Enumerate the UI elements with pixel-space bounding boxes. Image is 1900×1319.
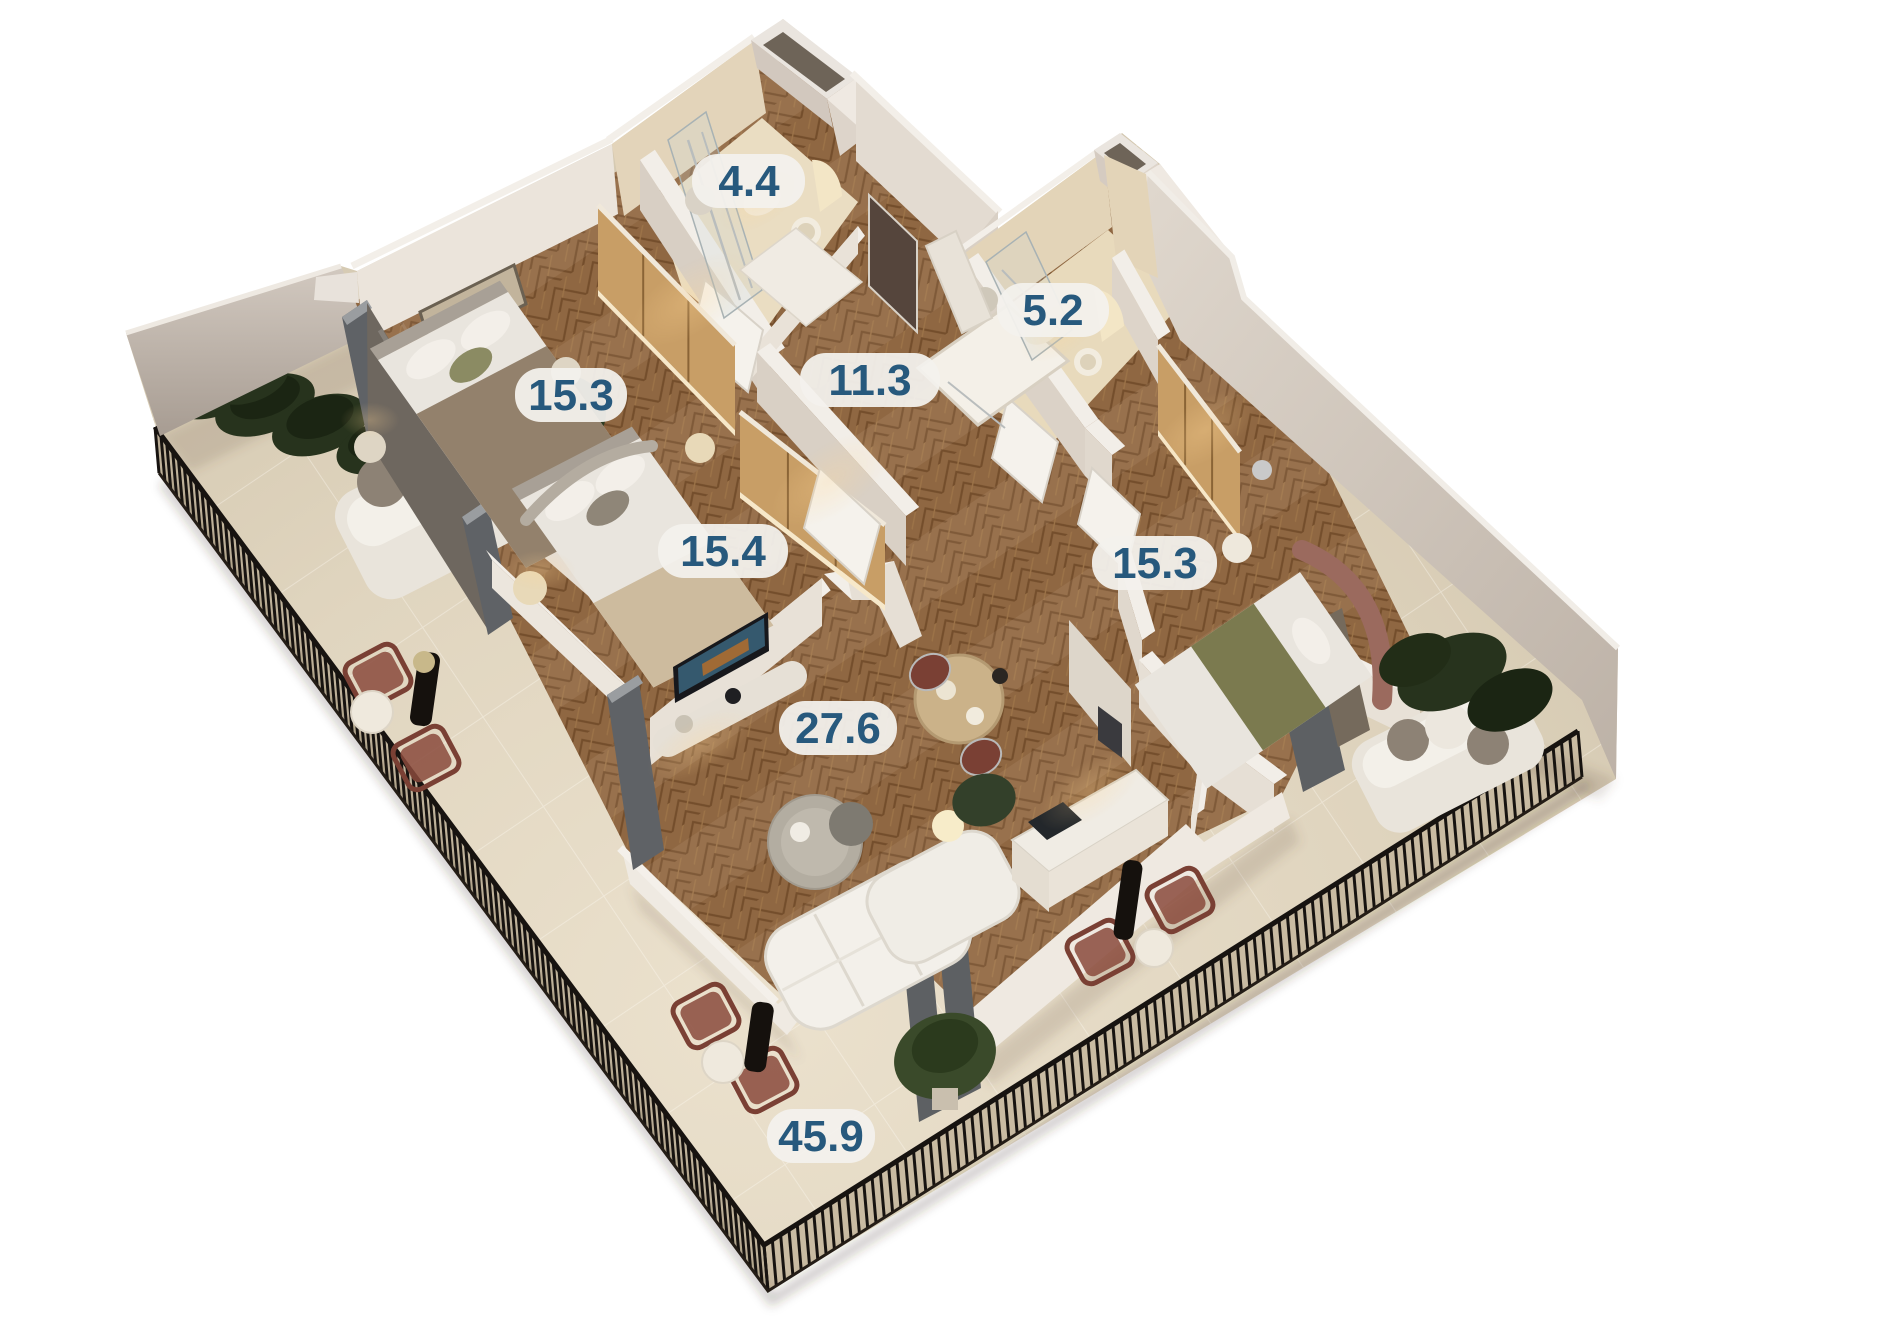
svg-text:45.9: 45.9	[778, 1112, 864, 1161]
svg-text:5.2: 5.2	[1022, 286, 1083, 335]
svg-text:4.4: 4.4	[718, 157, 780, 206]
svg-text:15.4: 15.4	[680, 527, 766, 576]
svg-text:15.3: 15.3	[1112, 539, 1198, 588]
svg-text:15.3: 15.3	[528, 371, 614, 420]
svg-text:11.3: 11.3	[828, 356, 911, 405]
svg-text:27.6: 27.6	[795, 704, 881, 753]
